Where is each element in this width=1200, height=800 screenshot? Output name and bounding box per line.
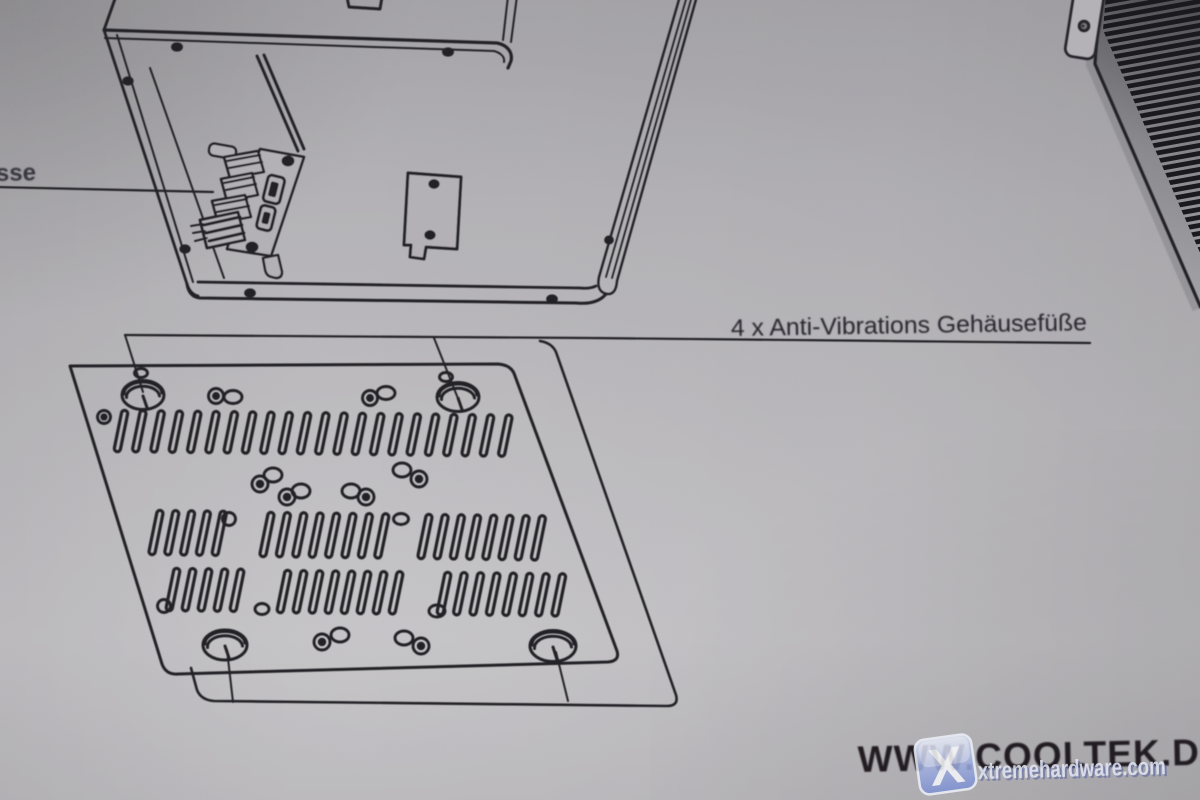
svg-text:4 x Anti-Vibrations Gehäusefüß: 4 x Anti-Vibrations Gehäusefüße [731,309,1087,342]
svg-text:xtremehardware.com: xtremehardware.com [977,753,1166,785]
svg-text:sse: sse [0,159,36,187]
